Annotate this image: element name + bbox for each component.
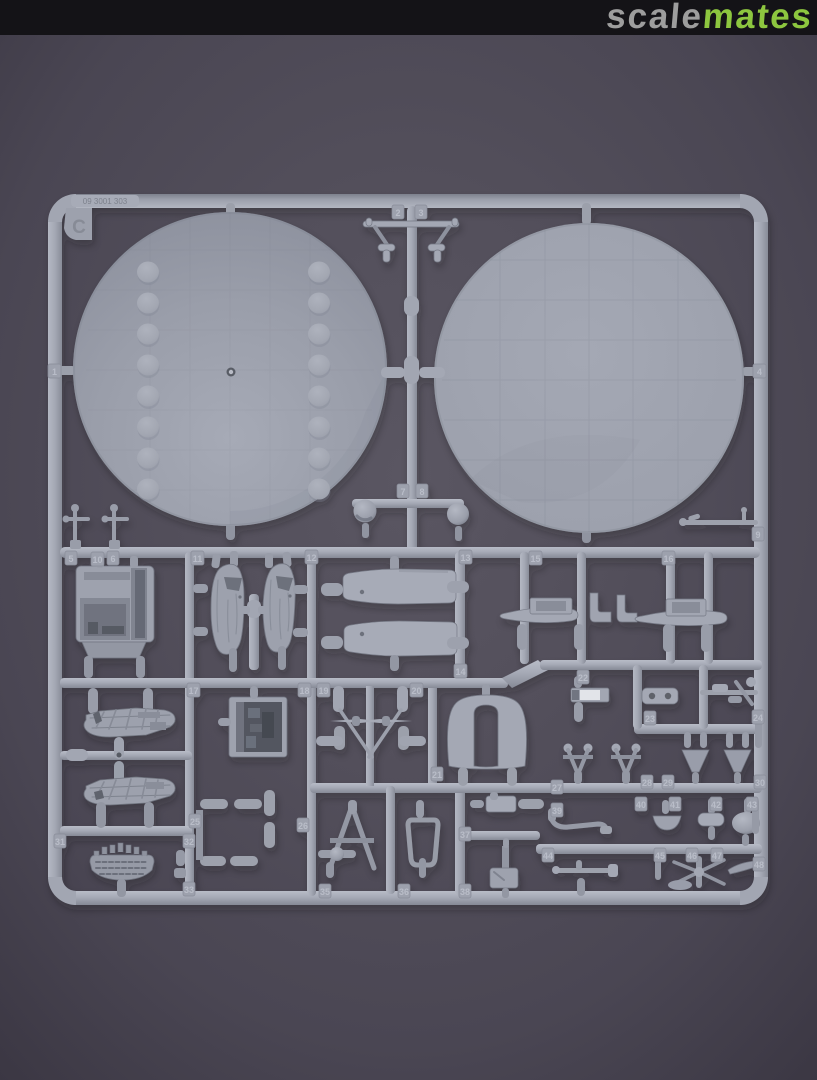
- svg-text:38: 38: [460, 887, 470, 897]
- svg-text:16: 16: [663, 554, 673, 564]
- svg-text:46: 46: [687, 851, 697, 861]
- svg-text:1: 1: [52, 367, 57, 377]
- svg-text:22: 22: [578, 673, 588, 683]
- svg-text:20: 20: [411, 686, 421, 696]
- svg-text:21: 21: [432, 770, 442, 780]
- svg-text:24: 24: [753, 713, 763, 723]
- svg-text:15: 15: [530, 554, 540, 564]
- svg-text:43: 43: [747, 800, 757, 810]
- svg-text:28: 28: [642, 778, 652, 788]
- svg-text:42: 42: [711, 800, 721, 810]
- svg-text:40: 40: [636, 800, 646, 810]
- svg-text:19: 19: [318, 686, 328, 696]
- svg-text:2: 2: [395, 208, 400, 218]
- svg-text:9: 9: [755, 530, 760, 540]
- svg-text:32: 32: [184, 837, 194, 847]
- svg-text:10: 10: [92, 555, 102, 565]
- svg-text:41: 41: [670, 800, 680, 810]
- svg-text:4: 4: [757, 367, 762, 377]
- svg-text:11: 11: [193, 554, 203, 564]
- svg-text:6: 6: [110, 554, 115, 564]
- svg-text:7: 7: [400, 487, 405, 497]
- svg-text:29: 29: [663, 778, 673, 788]
- svg-text:33: 33: [184, 885, 194, 895]
- svg-text:12: 12: [306, 553, 316, 563]
- svg-text:37: 37: [460, 830, 470, 840]
- svg-text:3: 3: [418, 208, 423, 218]
- svg-text:8: 8: [419, 487, 424, 497]
- svg-text:25: 25: [190, 817, 200, 827]
- svg-text:18: 18: [299, 686, 309, 696]
- svg-text:44: 44: [543, 851, 553, 861]
- svg-text:35: 35: [320, 887, 330, 897]
- svg-text:26: 26: [298, 821, 308, 831]
- svg-text:17: 17: [188, 686, 198, 696]
- svg-text:14: 14: [455, 667, 465, 677]
- svg-text:47: 47: [712, 851, 722, 861]
- svg-text:48: 48: [754, 860, 764, 870]
- svg-text:23: 23: [645, 714, 655, 724]
- svg-text:45: 45: [655, 851, 665, 861]
- svg-text:36: 36: [399, 887, 409, 897]
- svg-text:31: 31: [55, 837, 65, 847]
- svg-text:scalemates: scalemates: [605, 0, 812, 36]
- svg-text:5: 5: [68, 554, 73, 564]
- svg-text:39: 39: [552, 806, 562, 816]
- svg-text:09 3001 303: 09 3001 303: [83, 197, 128, 206]
- svg-text:27: 27: [552, 783, 562, 793]
- svg-text:C: C: [72, 217, 86, 238]
- svg-text:13: 13: [460, 553, 470, 563]
- svg-text:30: 30: [755, 778, 765, 788]
